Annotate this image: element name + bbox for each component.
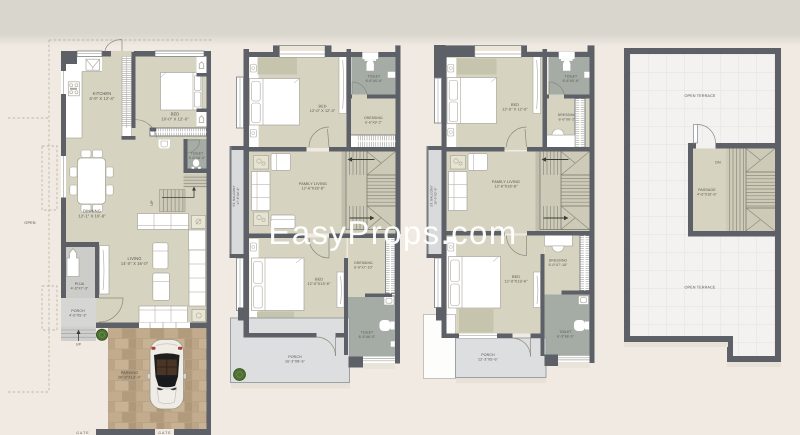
- svg-text:ST. BALCONY17'-5"X2'-9": ST. BALCONY17'-5"X2'-9": [232, 185, 240, 206]
- svg-text:UP: UP: [76, 343, 82, 347]
- svg-text:FAMILY LIVING12'-6"X18'-8": FAMILY LIVING12'-6"X18'-8": [492, 180, 520, 189]
- svg-text:FAMILY LIVING12'-6"X18'-8": FAMILY LIVING12'-6"X18'-8": [299, 182, 327, 191]
- svg-text:ST. BALCONY16'-0"X2'-9": ST. BALCONY16'-0"X2'-9": [430, 185, 438, 206]
- svg-text:PARKING28'-9"X13'-3": PARKING28'-9"X13'-3": [118, 371, 142, 380]
- svg-text:G A T E: G A T E: [76, 431, 89, 435]
- svg-text:EasyProps.com: EasyProps.com: [268, 214, 517, 251]
- svg-text:OPEN TERRACE: OPEN TERRACE: [684, 286, 715, 290]
- svg-text:DRESSING6'-6"X6'-2": DRESSING6'-6"X6'-2": [558, 113, 577, 121]
- svg-text:DRESSING6'-0"X7'-10": DRESSING6'-0"X7'-10": [549, 259, 569, 267]
- svg-text:KITCHEN8'-9" X 12'-4": KITCHEN8'-9" X 12'-4": [90, 91, 115, 101]
- svg-text:UP: UP: [150, 200, 154, 206]
- svg-text:OPEN: OPEN: [24, 221, 35, 225]
- svg-text:DRESSING6'-0"X7'-10": DRESSING6'-0"X7'-10": [354, 261, 374, 269]
- svg-text:DRESSING6'-6"X9'-2": DRESSING6'-6"X9'-2": [364, 116, 383, 124]
- svg-text:DN: DN: [715, 161, 721, 165]
- svg-text:OPEN TERRACE: OPEN TERRACE: [684, 94, 715, 98]
- svg-text:PASSAGE4'-0"X10'-6": PASSAGE4'-0"X10'-6": [697, 188, 718, 197]
- svg-text:G A T E: G A T E: [158, 431, 171, 435]
